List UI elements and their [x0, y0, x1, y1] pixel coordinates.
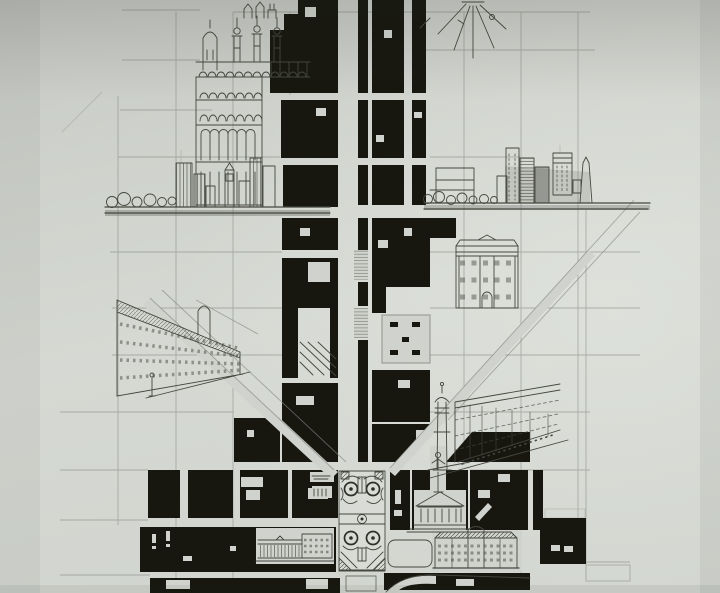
temple-backplate	[414, 490, 466, 530]
tower	[250, 158, 262, 207]
top-shadow	[0, 0, 720, 100]
median-block	[358, 282, 368, 306]
city-block	[283, 165, 338, 207]
window-block	[402, 337, 409, 342]
plaza-cut	[416, 430, 426, 440]
plaza-cut	[316, 108, 326, 116]
stair-hatch	[354, 250, 368, 280]
tower	[176, 163, 192, 207]
mansard-roof	[435, 532, 517, 538]
plaza-cut	[404, 228, 412, 236]
colonnade-columns	[259, 545, 302, 557]
plaza-cut	[395, 490, 401, 504]
city-block	[358, 165, 368, 205]
photo-of-architectural-drawing: Photograph of a hand-drawn urban master …	[0, 0, 720, 593]
garden-corner-hatch	[375, 472, 383, 479]
tower	[520, 158, 534, 203]
plaza-cut	[246, 490, 260, 500]
tower	[194, 174, 205, 207]
plaza-cut	[376, 135, 384, 142]
parterre-dot	[349, 487, 353, 491]
parterre-dot	[371, 487, 375, 491]
city-block	[540, 518, 586, 564]
stair-hatch	[354, 308, 368, 338]
city-block	[372, 287, 386, 313]
city-block	[412, 100, 426, 158]
plaza-cut	[378, 240, 388, 248]
plaza-cut	[296, 396, 314, 405]
plaza-cut	[308, 262, 330, 282]
plaza-cut	[551, 545, 560, 551]
city-block	[372, 218, 430, 287]
city-block	[281, 100, 338, 158]
median-block	[358, 340, 368, 462]
plaza-cut	[414, 112, 422, 118]
city-block	[372, 100, 404, 158]
bottom-edge-shade	[0, 585, 720, 593]
plaza-cut	[166, 544, 170, 547]
city-block	[358, 100, 368, 158]
plaza-cut	[394, 510, 402, 516]
city-block	[188, 470, 233, 518]
window-block	[412, 322, 420, 327]
city-block	[282, 308, 298, 378]
city-block	[148, 470, 180, 518]
plaza-cut	[247, 430, 254, 437]
urban-plan-drawing: Photograph of a hand-drawn urban master …	[0, 0, 720, 593]
plaza-cut	[456, 579, 474, 586]
plaza-cut	[152, 546, 156, 549]
window-block	[412, 350, 420, 355]
plaza-cut	[230, 546, 236, 551]
parterre-dot	[349, 536, 353, 540]
plaza-cut	[183, 556, 192, 561]
plaza-cut	[152, 534, 156, 543]
plaza-cut	[300, 228, 310, 236]
city-block	[372, 165, 404, 205]
mini-sketch-backplate	[310, 472, 334, 482]
city-block	[372, 370, 430, 422]
left-edge-shade	[0, 0, 40, 593]
window-block	[390, 350, 398, 355]
window-block	[390, 322, 398, 327]
city-block	[330, 308, 338, 378]
plaza-cut	[241, 477, 263, 487]
plaza-cut	[398, 380, 410, 388]
parterre-dot	[371, 536, 375, 540]
plaza-cut	[498, 474, 510, 482]
median-block	[358, 218, 368, 250]
center-dot	[361, 518, 364, 521]
plaza-cut	[166, 531, 170, 541]
garden-corner-hatch	[341, 472, 349, 479]
city-block	[430, 218, 456, 238]
plaza-cut	[564, 546, 573, 552]
tower-wash	[535, 167, 549, 203]
plaza-cut	[478, 490, 490, 498]
right-edge-shade	[700, 0, 720, 593]
